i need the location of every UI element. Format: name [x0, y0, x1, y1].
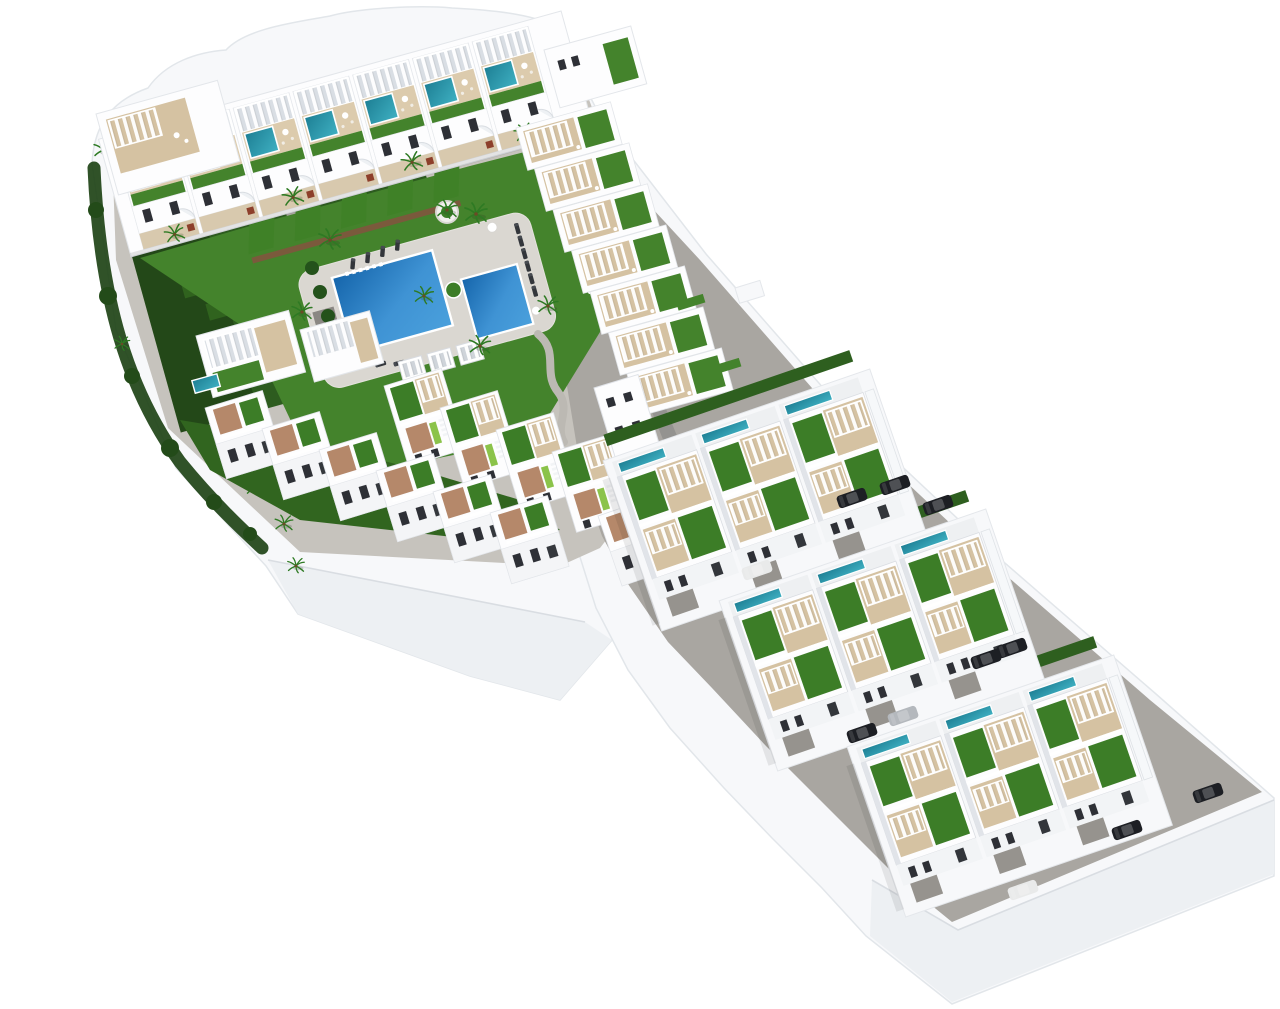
render-canvas — [0, 0, 1280, 1009]
site-plan-render — [0, 0, 1280, 1009]
